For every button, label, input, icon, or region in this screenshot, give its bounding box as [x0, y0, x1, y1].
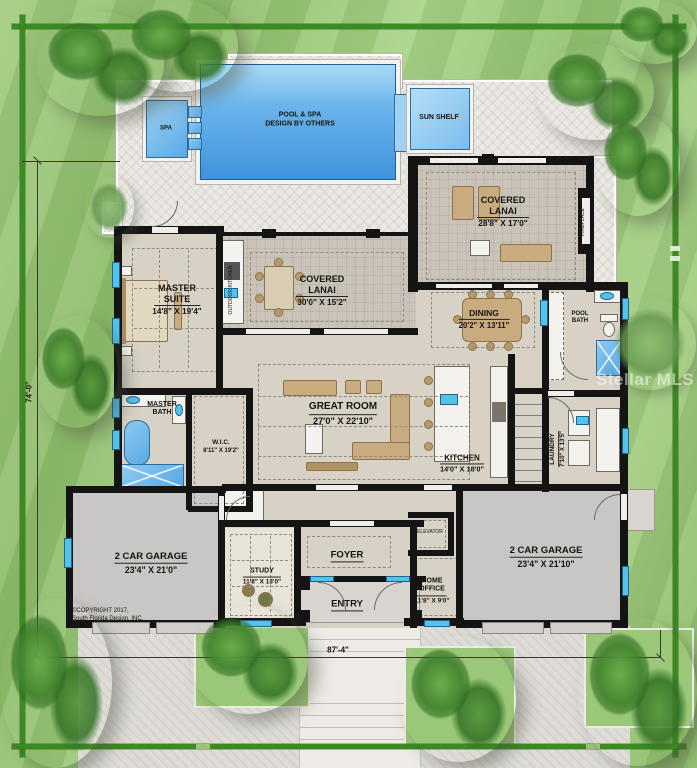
tree [120, 0, 238, 92]
stoop-right [626, 490, 654, 530]
slider-opening [324, 329, 388, 334]
tree [578, 618, 697, 766]
beam-line [258, 456, 468, 457]
slider-opening [504, 284, 538, 288]
slider-opening [436, 284, 492, 288]
wall [216, 226, 223, 392]
dim-line-bottom [37, 657, 661, 658]
poolbath-sink [600, 292, 614, 300]
room-label-kitchen: KITCHEN14'0" X 18'0" [440, 453, 484, 474]
dim-line-left [37, 160, 38, 658]
boundary-gap [670, 256, 680, 261]
dim-label-bottom: 87'-4" [327, 645, 349, 654]
boundary-gap [670, 246, 680, 251]
hall-opening [316, 485, 358, 490]
wall [218, 520, 424, 527]
lanai-column [482, 154, 494, 165]
floor-plan: POOL & SPADESIGN BY OTHERS SUN SHELF SPA… [0, 0, 697, 768]
wall [456, 484, 463, 628]
room-label-entry: ENTRY [331, 598, 363, 611]
laundry-machines [568, 440, 590, 466]
garage-door [482, 622, 544, 634]
door-opening [152, 227, 178, 233]
room-label-garage-left: 2 CAR GARAGE23'4" X 21'0" [115, 551, 188, 576]
tree [400, 636, 516, 762]
watermark: Stellar MLS [596, 370, 694, 390]
lanai-opening [430, 158, 478, 163]
range [492, 402, 506, 422]
window [64, 538, 72, 568]
slider-opening [246, 329, 310, 334]
laundry-sink [576, 416, 589, 425]
room-label-pool-bath: POOL BATH [569, 311, 591, 325]
entry-steps [300, 628, 420, 654]
tray-line [134, 328, 214, 329]
door-opening [219, 496, 224, 520]
room-label-spa: SPA [160, 125, 172, 132]
room-label-outdoor-kitchen: OUTDOOR KITCHEN [229, 266, 235, 315]
master-shower [120, 464, 184, 488]
wall [508, 388, 548, 394]
window [112, 262, 120, 288]
wall [508, 354, 515, 490]
window [622, 566, 629, 596]
room-label-great-room: GREAT ROOM27'0" X 22'10" [309, 401, 377, 427]
bush [84, 176, 134, 238]
front-door [310, 576, 334, 582]
porch-column [298, 578, 310, 590]
room-label-study: STUDY11'8" X 13'0" [243, 568, 281, 587]
kitchen-counter [490, 366, 508, 478]
window [424, 620, 450, 627]
window [622, 428, 629, 454]
room-label-master-suite: MASTER SUITE14'8" X 19'4" [152, 283, 201, 317]
room-label-home-office: HOME OFFICE11'8" X 9'0" [415, 577, 450, 604]
wall [222, 484, 512, 491]
bathtub [124, 420, 150, 466]
wall [408, 156, 418, 292]
porch-column [410, 610, 422, 622]
hall-opening [424, 485, 452, 490]
room-label-elevator: ELEVATOR [417, 530, 443, 536]
room-label-wic: W.I.C.8'11" X 19'2" [203, 439, 239, 455]
room-label-pool: POOL & SPADESIGN BY OTHERS [265, 111, 335, 129]
laundry-counter [596, 408, 620, 472]
wall [408, 550, 454, 556]
bath-sink [126, 396, 140, 404]
window [112, 430, 120, 450]
room-label-garage-right: 2 CAR GARAGE23'4" X 21'10" [510, 545, 583, 570]
tree [0, 598, 112, 768]
front-door [386, 576, 410, 582]
wall [66, 486, 226, 493]
tree [190, 606, 308, 714]
room-label-lanai-right: COVERED LANAI28'8" X 17'0" [477, 195, 529, 229]
porch-column [298, 610, 310, 622]
wall [294, 524, 301, 624]
tree [612, 0, 697, 64]
room-label-laundry: LAUNDRY7'10" X 13'5" [549, 431, 567, 467]
beam-line [258, 396, 468, 397]
room-label-lanai-center: COVERED LANAI30'0" X 15'2" [296, 274, 348, 308]
room-label-fireplace: FIREPLACE [581, 208, 587, 236]
wall [246, 388, 253, 512]
window [112, 318, 120, 344]
wall [186, 392, 192, 510]
lanai-column [262, 229, 276, 238]
door-opening [621, 494, 627, 520]
lanai-opening [498, 158, 546, 163]
island-sink [440, 394, 458, 405]
dim-label-left: 74'-0" [24, 381, 33, 403]
boundary-gap [196, 744, 210, 749]
spa-step [188, 138, 202, 150]
door-opening [548, 391, 574, 396]
tree [596, 112, 680, 216]
window [112, 398, 120, 418]
room-label-foyer: FOYER [331, 549, 364, 562]
study-line [232, 560, 288, 561]
boundary-bottom [12, 744, 686, 749]
spa-step [188, 106, 202, 118]
lanai-screen-wall [218, 232, 418, 236]
wall [114, 388, 248, 395]
tree [34, 316, 118, 428]
window [540, 300, 548, 326]
room-label-sun-shelf: SUN SHELF [419, 114, 459, 122]
hall-opening [330, 521, 374, 526]
lanai-column [366, 229, 380, 238]
room-label-dining: DINING20'2" X 13'11" [459, 308, 510, 330]
staircase [512, 394, 542, 484]
room-label-master-bath: MASTER BATH [146, 401, 178, 418]
spa-step [188, 122, 202, 134]
